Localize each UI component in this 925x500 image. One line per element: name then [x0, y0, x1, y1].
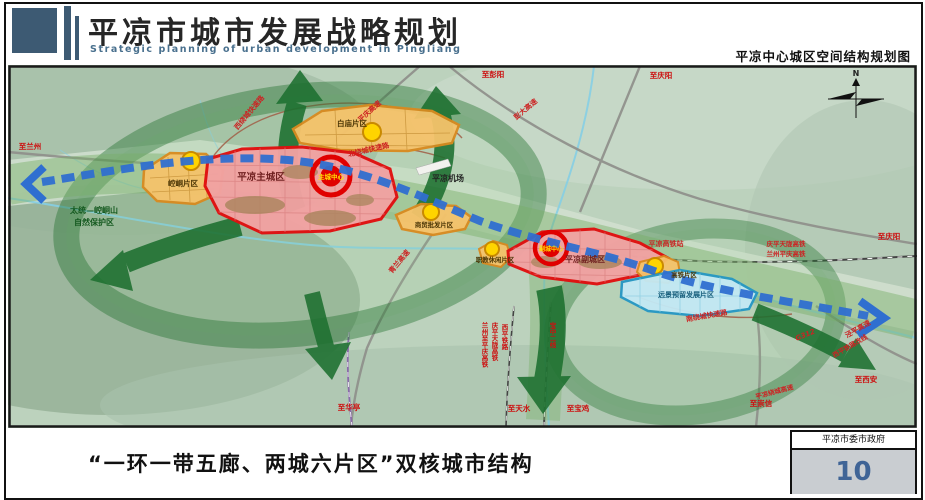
map-title-caption: 平凉中心城区空间结构规划图 [735, 46, 911, 65]
label-pingliang-airport: 平凉机场 [432, 173, 464, 183]
label-nature-reserve-line1: 太统—崆峒山 [69, 205, 118, 215]
structure-caption: “一环一带五廊、两城六片区”双核城市结构 [88, 448, 534, 478]
footer: “一环一带五廊、两城六片区”双核城市结构 平凉市委市政府 10 [8, 430, 917, 494]
label-sub-city: 平凉副城区 [565, 254, 605, 264]
label-pingliang-hsr-station: 平凉高铁站 [649, 239, 684, 248]
label-nature-reserve-line2: 自然保护区 [74, 217, 114, 227]
planning-map: 至兰州 至彭阳 至庆阳 至庆阳 至西安 至崇信 至天水 至宝鸡 至华亭 西绕城快… [8, 65, 917, 428]
label-to-qingyang-top: 至庆阳 [650, 70, 673, 80]
page-subtitle-english: Strategic planning of urban development … [90, 44, 462, 55]
label-to-tianshui: 至天水 [508, 403, 531, 413]
label-to-pengyang: 至彭阳 [482, 69, 505, 79]
label-main-center: 主城中心 [318, 172, 345, 181]
label-qingping-tianlong-hsr-vertical: 庆平天陇高铁 [490, 321, 499, 363]
label-main-city: 平凉主城区 [237, 171, 285, 183]
label-baozhong-second-line-vertical: 宝中二线 [548, 321, 556, 350]
page-number: 10 [792, 450, 915, 494]
label-district-shangmao: 商贸批发片区 [415, 220, 454, 229]
district-node-zhijiao [485, 242, 499, 256]
planning-document-page: 平凉市城市发展战略规划 Strategic planning of urban … [0, 0, 925, 500]
label-to-xian: 至西安 [855, 374, 878, 384]
footer-info-box: 平凉市委市政府 10 [790, 430, 917, 494]
compass-north-label: N [853, 69, 860, 78]
label-to-qingyang-right: 至庆阳 [878, 231, 901, 241]
logo-accent-bar [64, 6, 71, 60]
label-lanzhou-zhi-pingqing-hsr-vertical: 兰州至平庆高铁 [480, 321, 489, 369]
label-district-zhijiao: 职教休闲片区 [476, 255, 515, 264]
label-lanzhou-pingqing-hsr: 兰州平庆高铁 [767, 249, 807, 258]
label-sub-center: 副城中心 [539, 245, 563, 253]
map-svg: 至兰州 至彭阳 至庆阳 至庆阳 至西安 至崇信 至天水 至宝鸡 至华亭 西绕城快… [8, 65, 917, 428]
organization-label: 平凉市委市政府 [792, 432, 915, 450]
label-reserve-zone: 远景预留发展片区 [658, 290, 714, 299]
logo-square [12, 8, 57, 53]
label-district-kongtong: 崆峒片区 [168, 178, 198, 188]
label-to-lanzhou: 至兰州 [19, 141, 42, 151]
label-district-baimiao: 白庙片区 [337, 118, 367, 128]
label-to-baoji: 至宝鸡 [567, 403, 590, 413]
logo-accent-bar-thin [75, 16, 79, 60]
label-district-gaotie: 高铁片区 [671, 270, 697, 279]
label-to-huating: 至华亭 [338, 402, 361, 412]
label-xiping-railway-vertical: 西平铁路 [500, 324, 509, 352]
label-qingping-tianlong-hsr: 庆平天陇高铁 [766, 239, 807, 248]
